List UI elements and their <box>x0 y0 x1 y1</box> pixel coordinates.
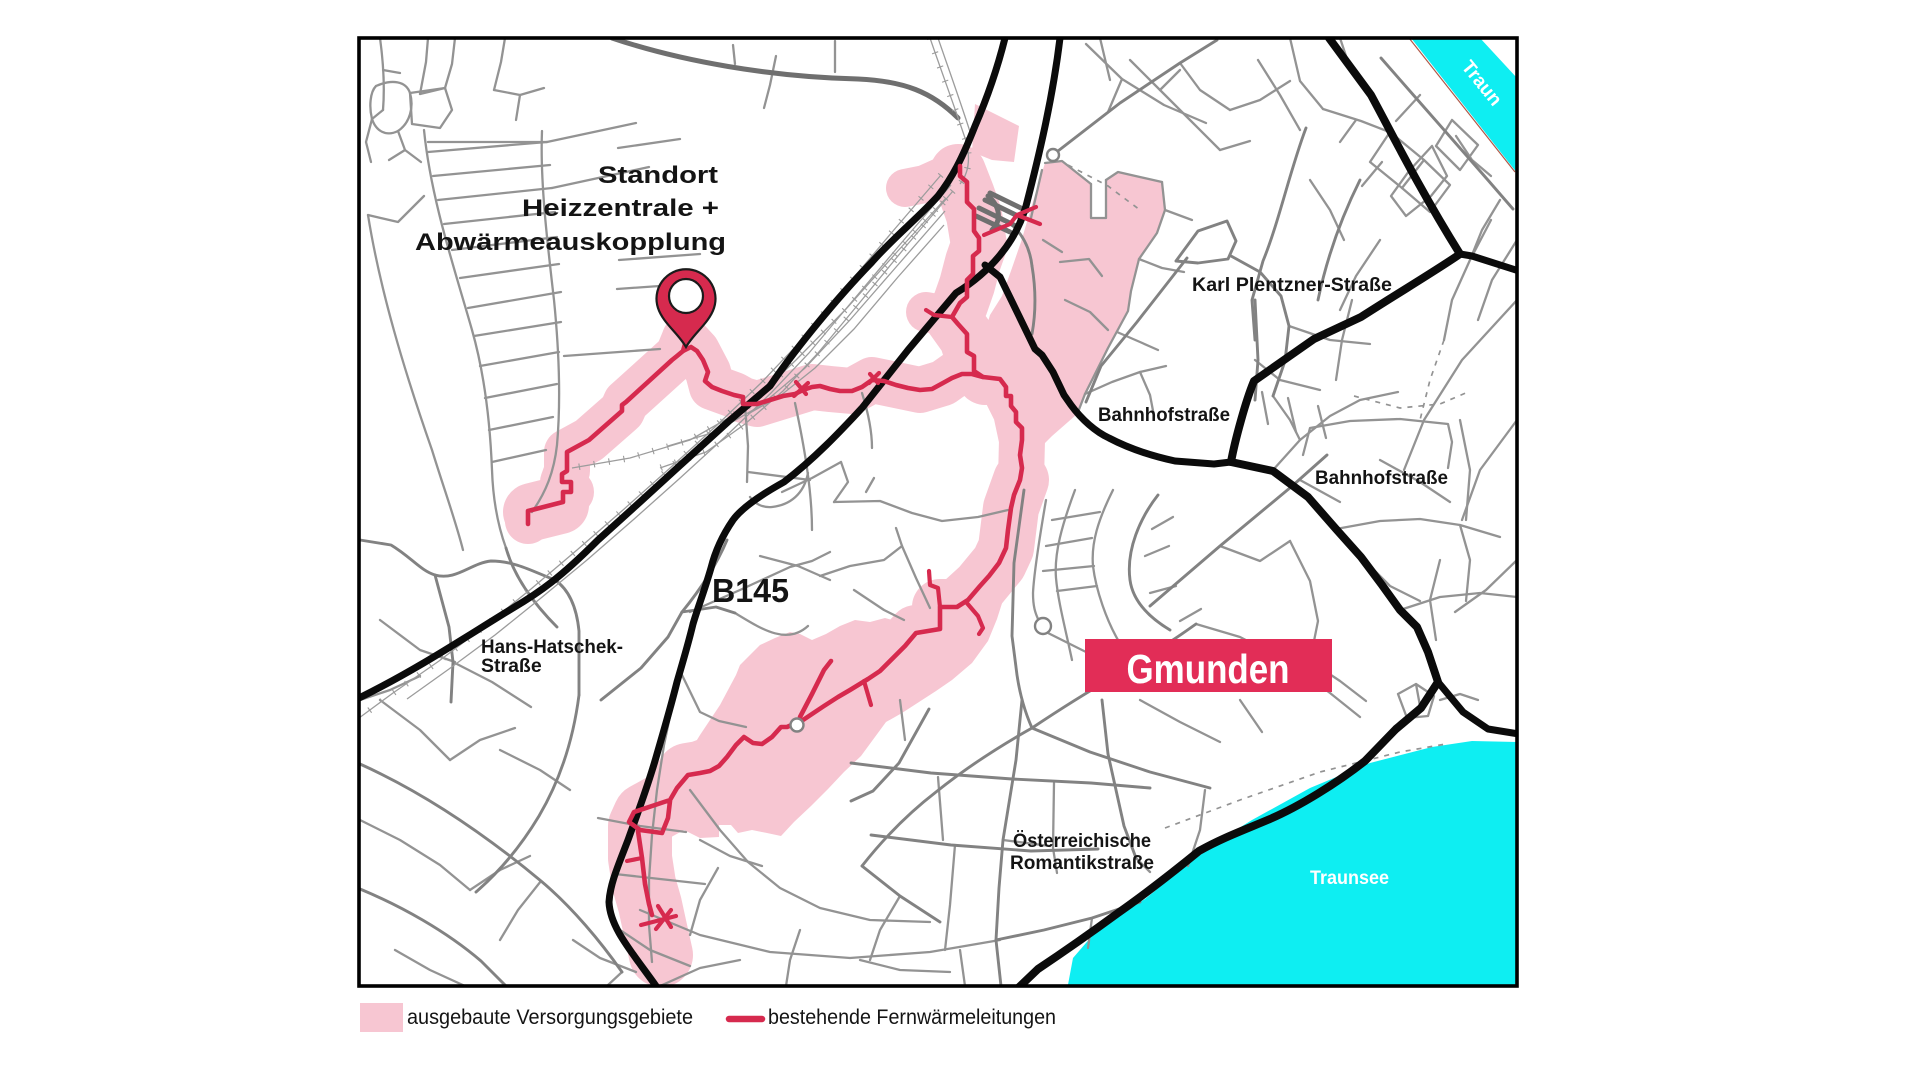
svg-text:Österreichische: Österreichische <box>1013 829 1151 852</box>
svg-text:Bahnhofstraße: Bahnhofstraße <box>1315 467 1448 489</box>
svg-text:Traunsee: Traunsee <box>1310 868 1389 889</box>
svg-text:Gmunden: Gmunden <box>1127 646 1290 692</box>
svg-text:Bahnhofstraße: Bahnhofstraße <box>1098 404 1230 426</box>
svg-text:Heizzentrale +: Heizzentrale + <box>522 195 719 222</box>
svg-text:Romantikstraße: Romantikstraße <box>1010 852 1154 874</box>
svg-text:B145: B145 <box>712 572 789 609</box>
svg-text:Standort: Standort <box>598 162 718 189</box>
svg-text:ausgebaute Versorgungsgebiete: ausgebaute Versorgungsgebiete <box>407 1005 693 1029</box>
svg-text:Abwärmeauskopplung: Abwärmeauskopplung <box>415 229 726 256</box>
svg-text:bestehende Fernwärmeleitungen: bestehende Fernwärmeleitungen <box>768 1005 1056 1029</box>
svg-text:Karl Plentzner-Straße: Karl Plentzner-Straße <box>1192 274 1392 296</box>
svg-text:Straße: Straße <box>481 655 542 677</box>
